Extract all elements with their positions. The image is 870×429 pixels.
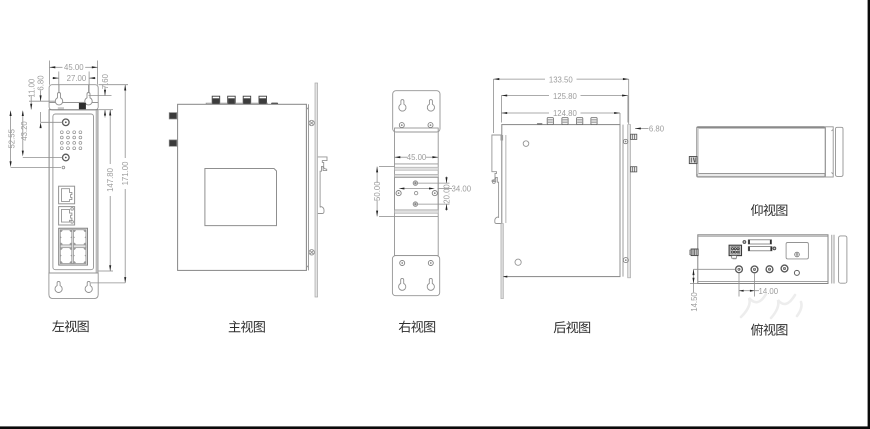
svg-text:6.80: 6.80 bbox=[649, 125, 665, 134]
svg-text:20.00: 20.00 bbox=[443, 184, 452, 204]
svg-text:14.50: 14.50 bbox=[690, 292, 699, 312]
svg-text:52.55: 52.55 bbox=[7, 128, 16, 148]
svg-text:14.00: 14.00 bbox=[759, 287, 779, 296]
svg-text:11.00: 11.00 bbox=[27, 78, 36, 98]
svg-text:45.00: 45.00 bbox=[64, 63, 84, 72]
svg-text:43.20: 43.20 bbox=[20, 121, 29, 141]
svg-text:6.80: 6.80 bbox=[37, 75, 46, 91]
svg-text:50.00: 50.00 bbox=[373, 181, 382, 201]
svg-text:171.00: 171.00 bbox=[121, 161, 130, 186]
svg-text:34.00: 34.00 bbox=[452, 185, 472, 194]
svg-text:45.00: 45.00 bbox=[407, 153, 427, 162]
svg-text:147.80: 147.80 bbox=[106, 167, 115, 192]
svg-text:7.60: 7.60 bbox=[101, 73, 110, 89]
svg-text:124.80: 124.80 bbox=[553, 109, 578, 118]
svg-text:125.80: 125.80 bbox=[553, 92, 578, 101]
svg-text:27.00: 27.00 bbox=[67, 74, 87, 83]
svg-text:133.50: 133.50 bbox=[549, 75, 574, 84]
